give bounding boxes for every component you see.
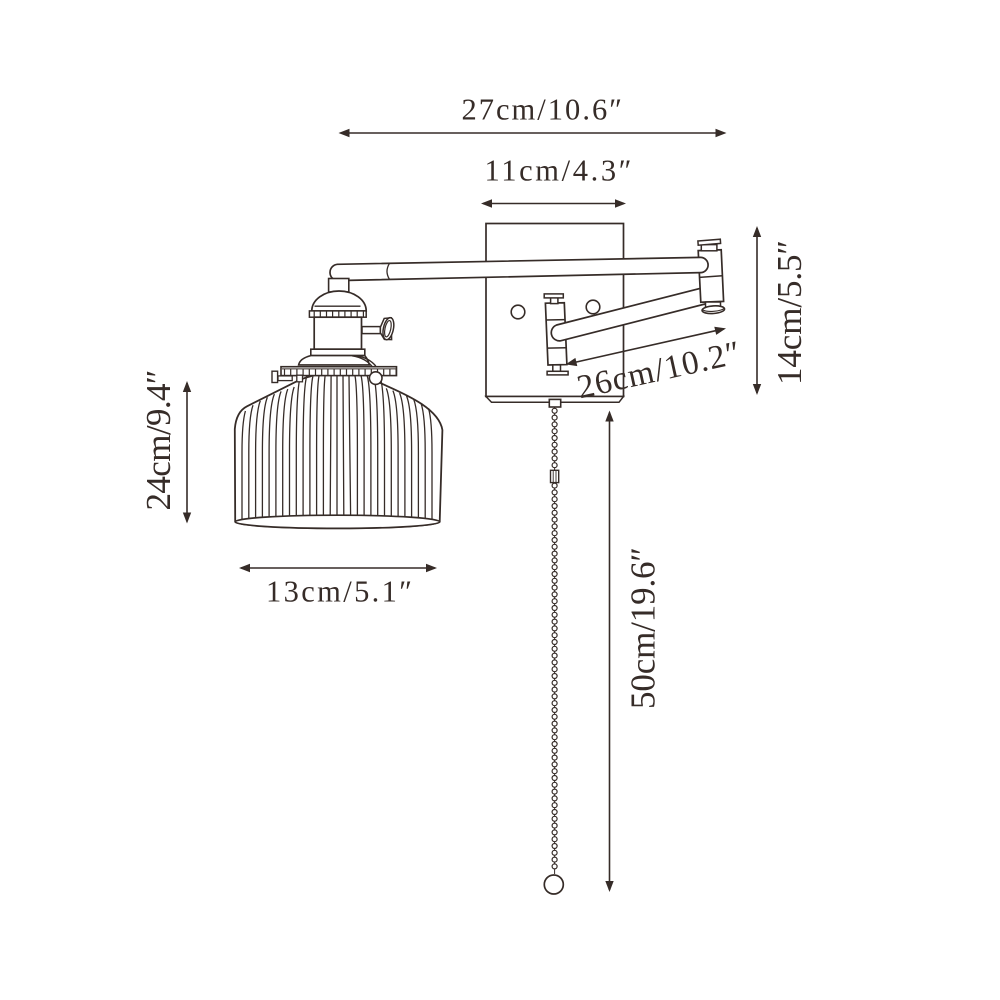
svg-text:11cm/4.3″: 11cm/4.3″	[485, 154, 632, 188]
svg-text:24cm/9.4″: 24cm/9.4″	[139, 370, 178, 511]
svg-text:27cm/10.6″: 27cm/10.6″	[461, 93, 622, 127]
svg-text:14cm/5.5″: 14cm/5.5″	[770, 240, 809, 385]
svg-text:50cm/19.6″: 50cm/19.6″	[624, 547, 663, 709]
svg-text:13cm/5.1″: 13cm/5.1″	[266, 575, 412, 609]
